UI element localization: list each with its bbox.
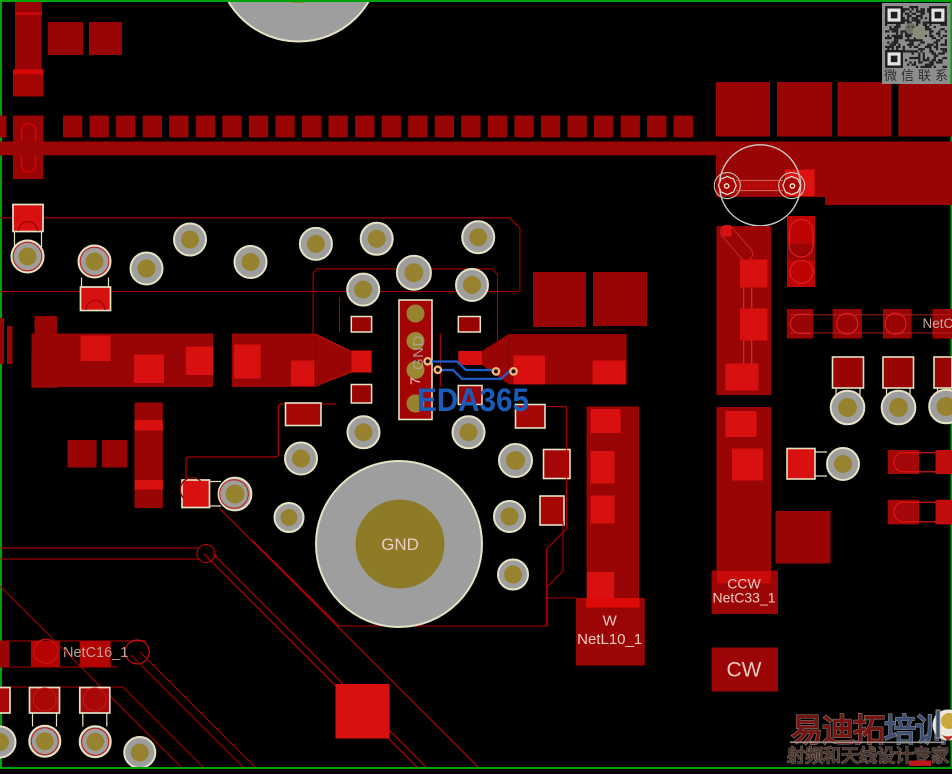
svg-text:EDA365: EDA365	[417, 382, 529, 418]
svg-text:CW: CW	[727, 659, 762, 682]
svg-text:NetC: NetC	[923, 316, 952, 331]
svg-text:NetC33_1: NetC33_1	[712, 590, 775, 606]
svg-text:GND: GND	[381, 535, 419, 554]
svg-text:微信联系: 微信联系	[884, 68, 952, 83]
svg-text:NetL10_1: NetL10_1	[577, 631, 642, 648]
svg-text:GND: GND	[410, 335, 427, 370]
svg-text:W: W	[603, 613, 618, 630]
